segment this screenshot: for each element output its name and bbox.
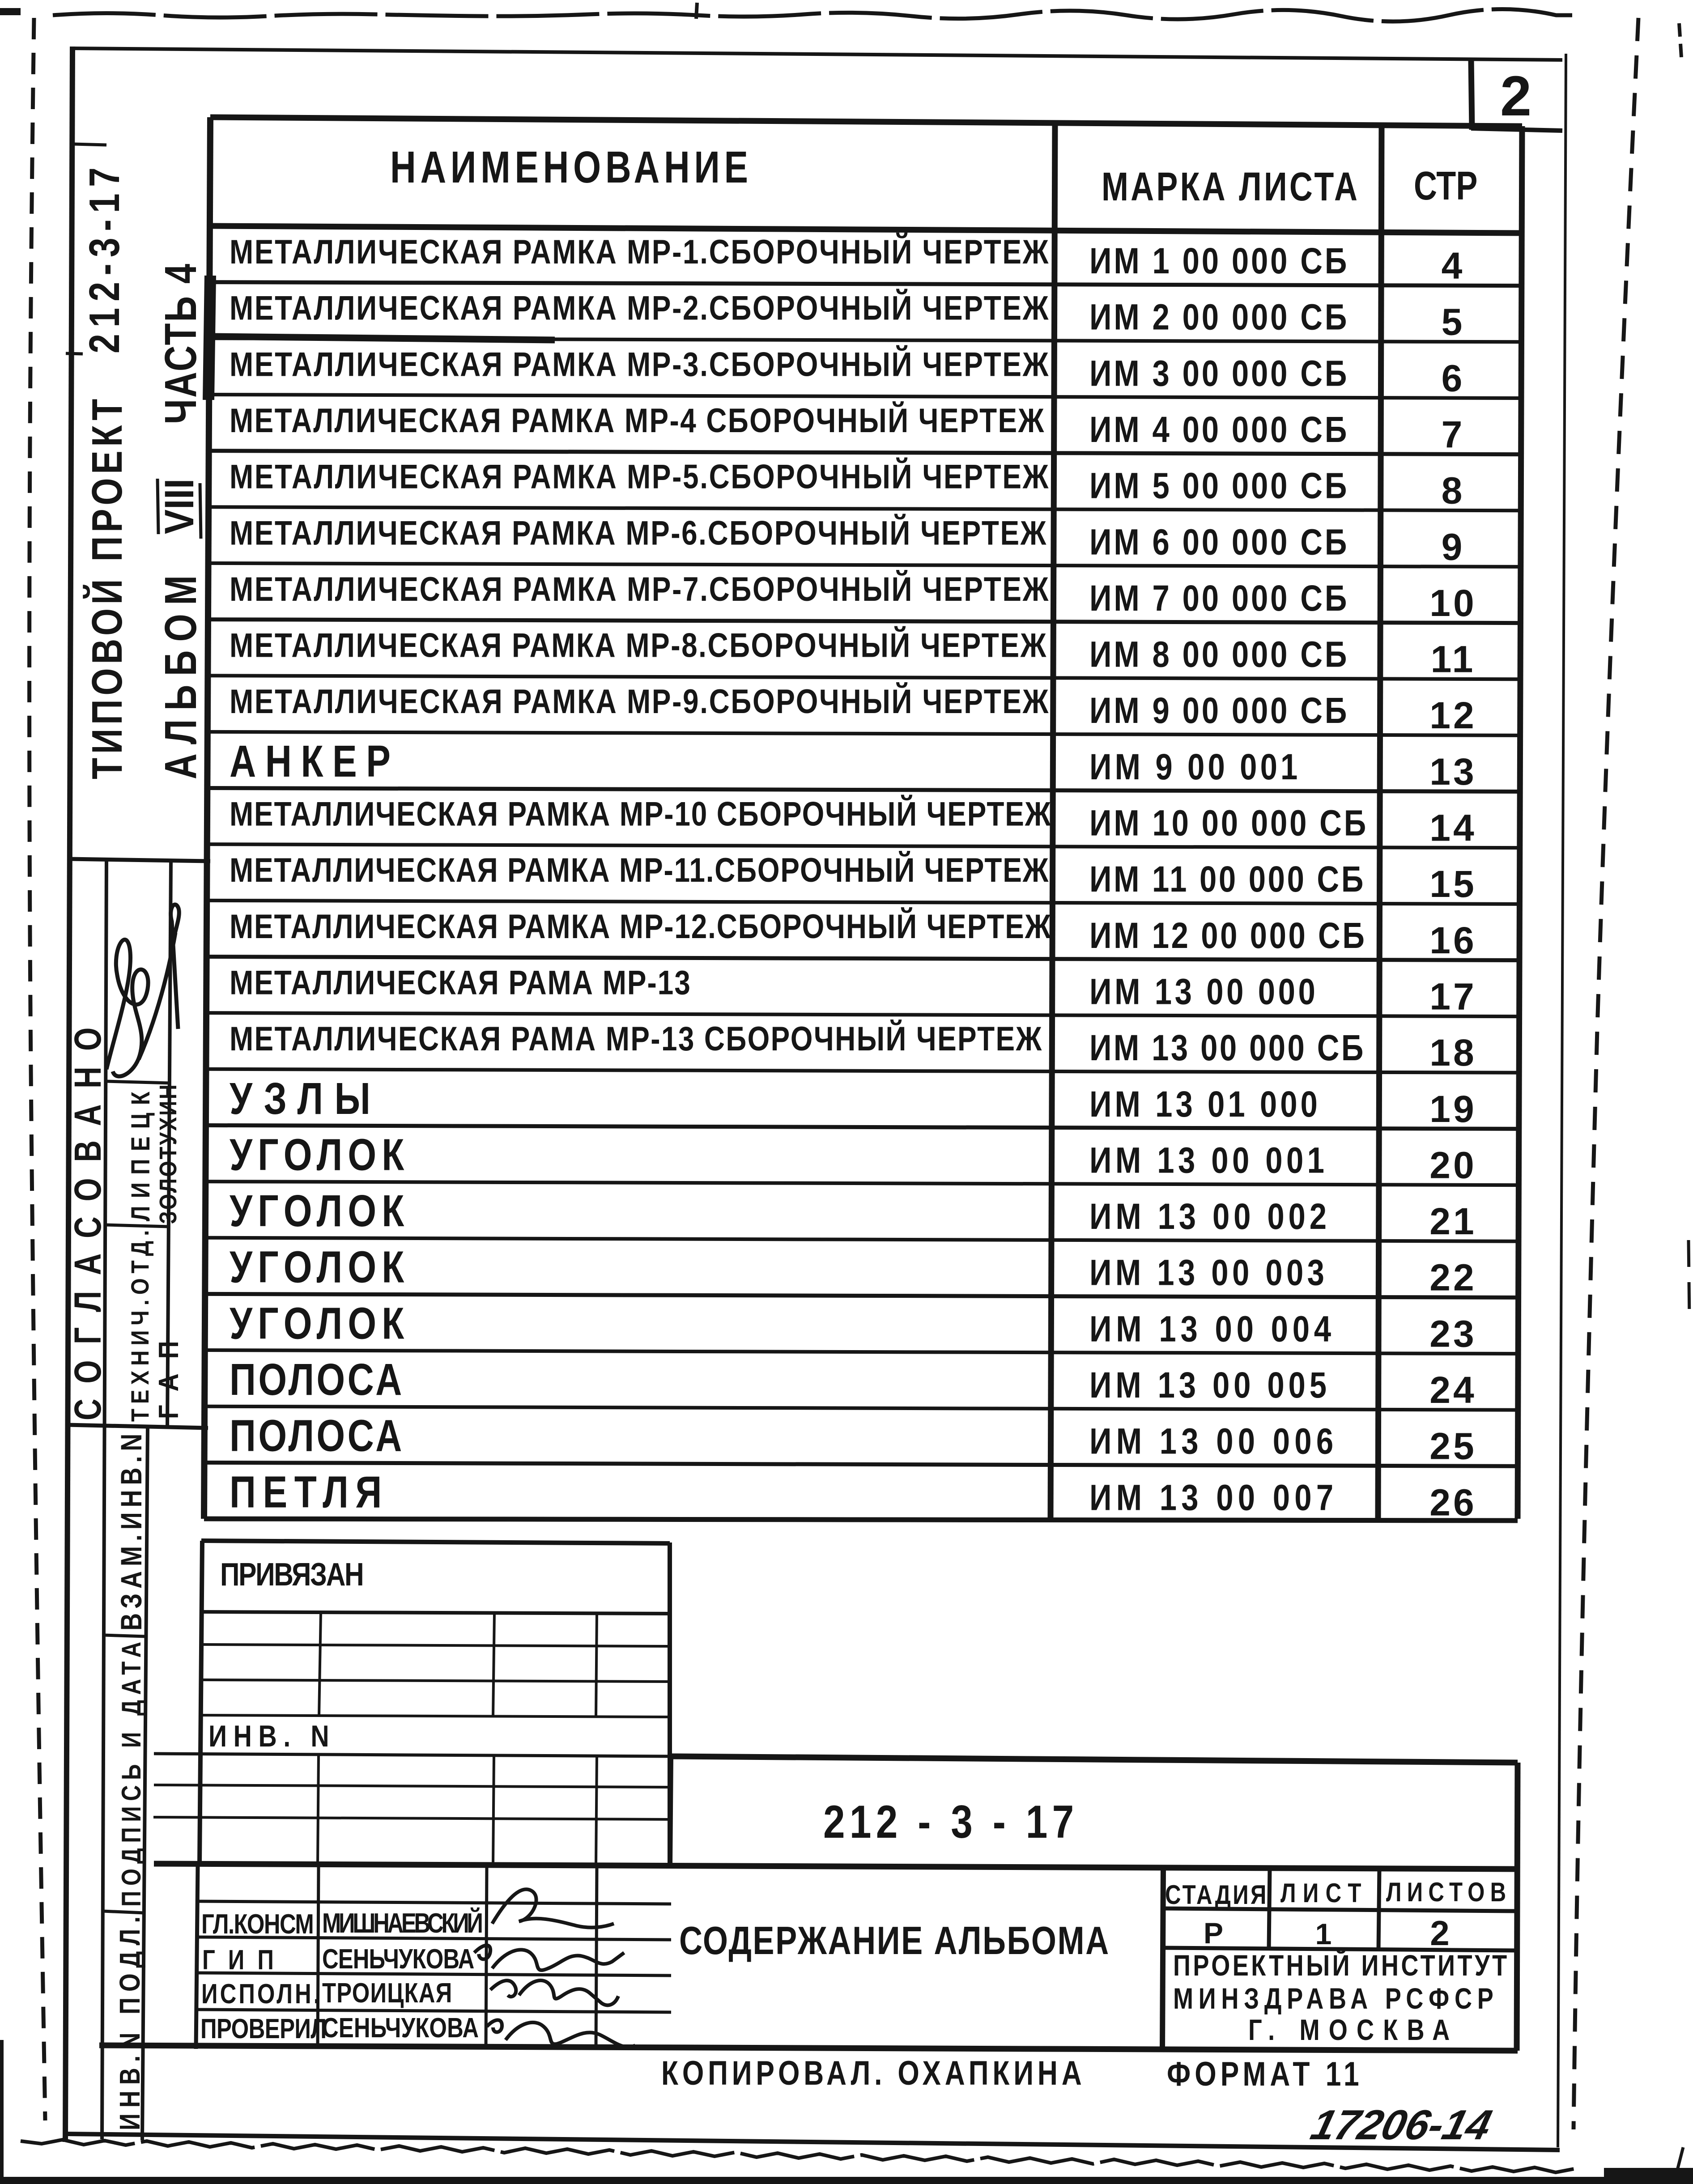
- svg-text:МЕТАЛЛИЧЕСКАЯ РАМКА МР-11.СБОР: МЕТАЛЛИЧЕСКАЯ РАМКА МР-11.СБОРОЧНЫЙ ЧЕРТ…: [230, 851, 1049, 889]
- svg-text:МЕТАЛЛИЧЕСКАЯ РАМКА МР-6.СБОРО: МЕТАЛЛИЧЕСКАЯ РАМКА МР-6.СБОРОЧНЫЙ ЧЕРТЕ…: [230, 514, 1046, 552]
- svg-text:ИМ 9 00 000 СБ: ИМ 9 00 000 СБ: [1089, 690, 1347, 731]
- svg-text:ИМ 13 00 006: ИМ 13 00 006: [1089, 1421, 1333, 1462]
- svg-text:VIII: VIII: [156, 479, 202, 534]
- svg-text:МЕТАЛЛИЧЕСКАЯ РАМКА МР-12.СБОР: МЕТАЛЛИЧЕСКАЯ РАМКА МР-12.СБОРОЧНЫЙ ЧЕРТ…: [230, 907, 1051, 946]
- svg-text:ГЛ.КОНСМ: ГЛ.КОНСМ: [201, 1909, 314, 1940]
- svg-text:МЕТАЛЛИЧЕСКАЯ РАМКА МР-9.СБОРО: МЕТАЛЛИЧЕСКАЯ РАМКА МР-9.СБОРОЧНЫЙ ЧЕРТЕ…: [230, 682, 1049, 721]
- svg-text:МЕТАЛЛИЧЕСКАЯ РАМКА МР-1.СБОРО: МЕТАЛЛИЧЕСКАЯ РАМКА МР-1.СБОРОЧНЫЙ ЧЕРТЕ…: [230, 233, 1049, 271]
- svg-text:ИНВ. N: ИНВ. N: [208, 1719, 329, 1753]
- svg-text:12: 12: [1429, 694, 1476, 736]
- svg-text:4: 4: [1442, 245, 1465, 287]
- svg-text:9: 9: [1442, 526, 1465, 568]
- svg-text:ИМ 11 00 000 СБ: ИМ 11 00 000 СБ: [1089, 859, 1363, 900]
- svg-text:ИМ 3 00 000 СБ: ИМ 3 00 000 СБ: [1089, 353, 1347, 394]
- svg-text:ИМ 13 00 004: ИМ 13 00 004: [1089, 1309, 1331, 1350]
- svg-text:СТР: СТР: [1414, 163, 1477, 208]
- svg-text:МЕТАЛЛИЧЕСКАЯ РАМА МР-13: МЕТАЛЛИЧЕСКАЯ РАМА МР-13: [230, 963, 690, 1002]
- svg-text:ТИПОВОЙ ПРОЕКТ: ТИПОВОЙ ПРОЕКТ: [83, 399, 131, 779]
- svg-text:МЕТАЛЛИЧЕСКАЯ РАМКА МР-3.СБОРО: МЕТАЛЛИЧЕСКАЯ РАМКА МР-3.СБОРОЧНЫЙ ЧЕРТЕ…: [230, 345, 1049, 383]
- svg-text:ИМ 12 00 000 СБ: ИМ 12 00 000 СБ: [1089, 915, 1365, 956]
- svg-text:СЕНЬЧУКОВА: СЕНЬЧУКОВА: [322, 1944, 474, 1975]
- svg-text:АНКЕР: АНКЕР: [230, 736, 391, 786]
- svg-text:21: 21: [1429, 1200, 1476, 1242]
- svg-text:17206-14: 17206-14: [1306, 2102, 1497, 2148]
- svg-text:2: 2: [1500, 64, 1531, 127]
- svg-text:ИМ 13 00 000: ИМ 13 00 000: [1089, 971, 1315, 1012]
- svg-text:МЕТАЛЛИЧЕСКАЯ РАМКА МР-8.СБОРО: МЕТАЛЛИЧЕСКАЯ РАМКА МР-8.СБОРОЧНЫЙ ЧЕРТЕ…: [230, 626, 1046, 664]
- svg-text:СОДЕРЖАНИЕ АЛЬБОМА: СОДЕРЖАНИЕ АЛЬБОМА: [679, 1919, 1109, 1963]
- svg-text:11: 11: [1431, 638, 1476, 680]
- svg-text:ЧАСТЬ 4: ЧАСТЬ 4: [156, 264, 206, 424]
- svg-text:ИМ 2 00 000 СБ: ИМ 2 00 000 СБ: [1089, 297, 1347, 338]
- svg-text:1: 1: [1315, 1917, 1332, 1950]
- svg-text:МЕТАЛЛИЧЕСКАЯ РАМКА МР-10 СБОР: МЕТАЛЛИЧЕСКАЯ РАМКА МР-10 СБОРОЧНЫЙ ЧЕРТ…: [230, 795, 1051, 833]
- svg-text:14: 14: [1429, 807, 1476, 849]
- svg-text:ИМ 13 00 001: ИМ 13 00 001: [1089, 1140, 1324, 1181]
- svg-text:ПРИВЯЗАН: ПРИВЯЗАН: [220, 1557, 364, 1593]
- svg-text:ПЕТЛЯ: ПЕТЛЯ: [230, 1467, 382, 1517]
- svg-text:ИМ 5 00 000 СБ: ИМ 5 00 000 СБ: [1089, 465, 1347, 506]
- svg-text:ИМ 10 00 000 СБ: ИМ 10 00 000 СБ: [1089, 803, 1366, 844]
- svg-text:ИМ 13 00 007: ИМ 13 00 007: [1089, 1477, 1333, 1518]
- svg-text:5: 5: [1442, 301, 1465, 343]
- svg-text:СЕНЬЧУКОВА: СЕНЬЧУКОВА: [322, 2013, 479, 2044]
- svg-text:ИМ 13 01 000: ИМ 13 01 000: [1089, 1084, 1318, 1125]
- svg-text:26: 26: [1429, 1481, 1476, 1523]
- svg-text:7: 7: [1442, 413, 1465, 455]
- svg-text:24: 24: [1429, 1369, 1476, 1411]
- svg-text:ИМ 13 00 000 СБ: ИМ 13 00 000 СБ: [1089, 1027, 1363, 1068]
- svg-text:МЕТАЛЛИЧЕСКАЯ РАМКА МР-7.СБОРО: МЕТАЛЛИЧЕСКАЯ РАМКА МР-7.СБОРОЧНЫЙ ЧЕРТЕ…: [230, 570, 1049, 608]
- svg-text:15: 15: [1429, 863, 1476, 905]
- svg-text:ЗОЛОТУХИН: ЗОЛОТУХИН: [155, 1084, 182, 1224]
- svg-text:ИМ 1 00 000 СБ: ИМ 1 00 000 СБ: [1089, 240, 1347, 281]
- svg-text:20: 20: [1429, 1144, 1476, 1186]
- svg-text:МЕТАЛЛИЧЕСКАЯ РАМА МР-13 СБОРО: МЕТАЛЛИЧЕСКАЯ РАМА МР-13 СБОРОЧНЫЙ ЧЕРТЕ…: [230, 1020, 1042, 1058]
- svg-text:ФОРМАТ 11: ФОРМАТ 11: [1167, 2055, 1359, 2093]
- svg-text:ГИП: ГИП: [202, 1945, 274, 1976]
- svg-text:ИМ 13 00 002: ИМ 13 00 002: [1089, 1196, 1327, 1237]
- svg-text:25: 25: [1429, 1425, 1476, 1467]
- svg-text:ИМ 9 00 001: ИМ 9 00 001: [1089, 746, 1297, 787]
- svg-text:6: 6: [1442, 357, 1465, 399]
- svg-text:10: 10: [1429, 582, 1476, 624]
- svg-text:22: 22: [1429, 1257, 1476, 1299]
- svg-text:ИМ 4 00 000 СБ: ИМ 4 00 000 СБ: [1089, 409, 1347, 450]
- svg-text:МЕТАЛЛИЧЕСКАЯ РАМКА МР-2.СБОРО: МЕТАЛЛИЧЕСКАЯ РАМКА МР-2.СБОРОЧНЫЙ ЧЕРТЕ…: [230, 289, 1049, 327]
- svg-text:ИМ 13 00 005: ИМ 13 00 005: [1089, 1364, 1327, 1406]
- svg-text:ТРОИЦКАЯ: ТРОИЦКАЯ: [322, 1978, 452, 2009]
- svg-text:УЗЛЫ: УЗЛЫ: [230, 1074, 370, 1124]
- svg-text:МАРКА ЛИСТА: МАРКА ЛИСТА: [1102, 164, 1357, 209]
- svg-text:МЕТАЛЛИЧЕСКАЯ РАМКА МР-4 СБОРО: МЕТАЛЛИЧЕСКАЯ РАМКА МР-4 СБОРОЧНЫЙ ЧЕРТЕ…: [230, 401, 1044, 440]
- svg-text:23: 23: [1429, 1313, 1476, 1355]
- svg-text:ГАП: ГАП: [153, 1341, 184, 1419]
- svg-text:16: 16: [1429, 919, 1476, 961]
- svg-text:ИМ 8 00 000 СБ: ИМ 8 00 000 СБ: [1089, 634, 1347, 675]
- svg-text:МЕТАЛЛИЧЕСКАЯ РАМКА МР-5.СБОРО: МЕТАЛЛИЧЕСКАЯ РАМКА МР-5.СБОРОЧНЫЙ ЧЕРТЕ…: [230, 457, 1049, 496]
- svg-text:13: 13: [1429, 751, 1476, 793]
- svg-text:17: 17: [1429, 975, 1476, 1017]
- svg-text:ПРОВЕРИЛ: ПРОВЕРИЛ: [200, 2014, 327, 2044]
- svg-text:18: 18: [1429, 1032, 1476, 1074]
- svg-text:8: 8: [1442, 470, 1465, 512]
- svg-text:МИНЗДРАВА РСФСР: МИНЗДРАВА РСФСР: [1173, 1982, 1493, 2015]
- svg-text:19: 19: [1429, 1088, 1476, 1130]
- svg-text:СОГЛАСОВАНО: СОГЛАСОВАНО: [67, 1028, 109, 1420]
- svg-text:ИМ 7 00 000 СБ: ИМ 7 00 000 СБ: [1089, 578, 1347, 619]
- svg-text:Р: Р: [1204, 1916, 1223, 1950]
- svg-text:ИМ 6 00 000 СБ: ИМ 6 00 000 СБ: [1089, 522, 1347, 563]
- svg-text:СТАДИЯ: СТАДИЯ: [1165, 1879, 1266, 1910]
- svg-text:2: 2: [1430, 1913, 1449, 1953]
- svg-text:МИШНАЕВСКИЙ: МИШНАЕВСКИЙ: [322, 1907, 483, 1939]
- svg-text:ИМ 13 00 003: ИМ 13 00 003: [1089, 1252, 1324, 1293]
